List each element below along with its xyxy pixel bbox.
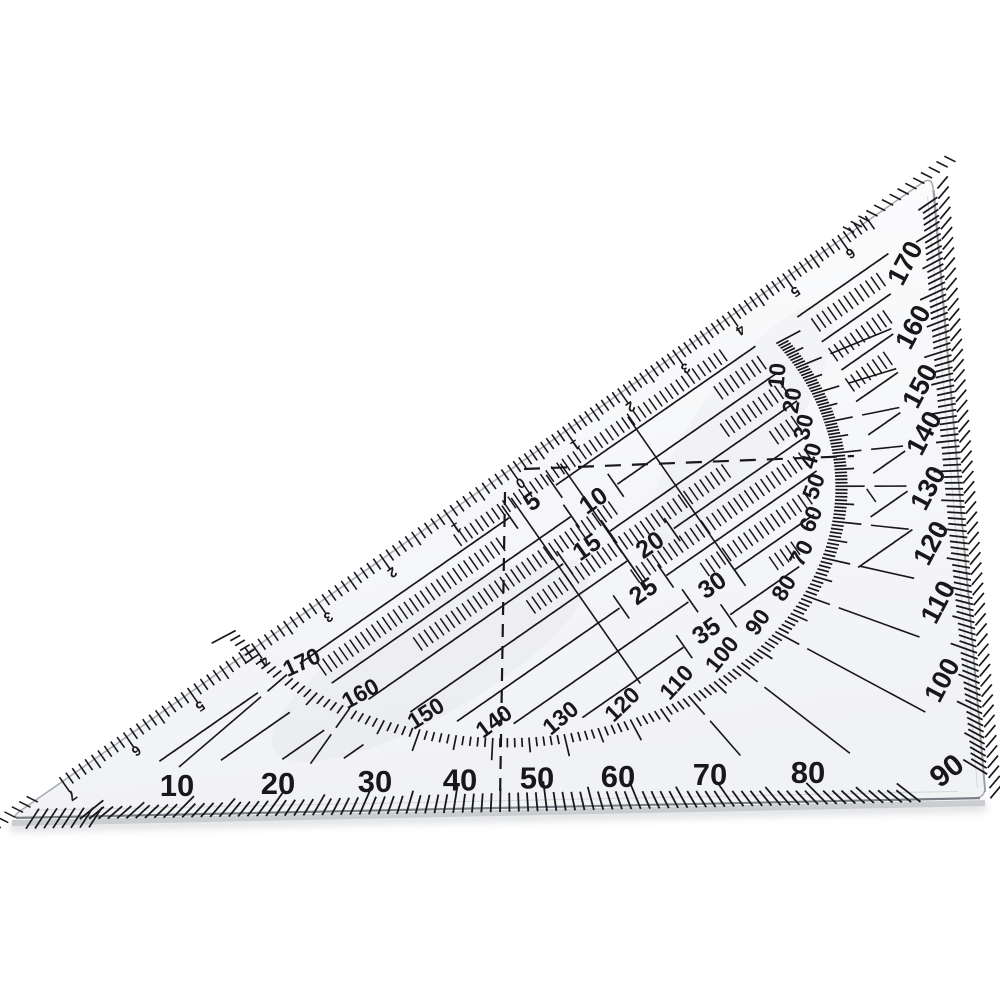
set-square-svg: 0123456123456710203040506070809010011012… (0, 0, 1000, 1000)
degree-label-ring: 20 (777, 386, 807, 415)
degree-label-bottom: 70 (693, 757, 727, 792)
degree-label-bottom: 20 (261, 766, 295, 801)
degree-label-bottom: 60 (601, 759, 635, 794)
degree-label-bottom: 30 (358, 764, 392, 799)
degree-label-bottom: 50 (520, 761, 554, 796)
degree-label-bottom: 10 (160, 768, 194, 803)
photo-of-protractor-set-square: 0123456123456710203040506070809010011012… (0, 0, 1000, 1000)
degree-label-bottom: 80 (791, 755, 825, 790)
degree-label-bottom: 40 (443, 762, 477, 797)
degree-label-ring: 10 (763, 362, 791, 390)
